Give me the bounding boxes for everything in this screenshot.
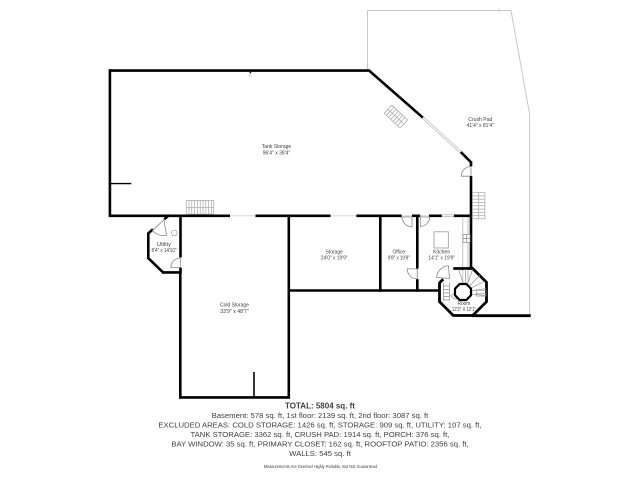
svg-text:Crush Pad: Crush Pad: [468, 117, 492, 123]
svg-text:24'0" x 19'9": 24'0" x 19'9": [321, 256, 348, 262]
svg-text:WALLS: 545 sq. ft: WALLS: 545 sq. ft: [289, 449, 352, 458]
svg-text:BAY WINDOW: 35 sq. ft, PRIMARY: BAY WINDOW: 35 sq. ft, PRIMARY CLOSET: 1…: [171, 440, 468, 449]
svg-text:Office: Office: [393, 249, 406, 255]
svg-text:TOTAL: 5804 sq. ft: TOTAL: 5804 sq. ft: [285, 402, 355, 411]
svg-text:96'4" x 38'4": 96'4" x 38'4": [263, 151, 291, 157]
svg-text:33'9" x 48'7": 33'9" x 48'7": [220, 309, 249, 315]
svg-text:Cold Storage: Cold Storage: [220, 303, 249, 309]
svg-text:Measurements Are Deemed Highly: Measurements Are Deemed Highly Reliable,…: [264, 464, 378, 469]
svg-text:8'4" x 14'10": 8'4" x 14'10": [152, 248, 177, 254]
svg-text:14'1" x 19'9": 14'1" x 19'9": [428, 256, 455, 262]
svg-text:Tank Storage: Tank Storage: [262, 144, 292, 150]
svg-text:Kitchen: Kitchen: [433, 249, 450, 255]
svg-text:Storage: Storage: [326, 249, 344, 255]
svg-text:9'8" x 19'9": 9'8" x 19'9": [388, 256, 410, 262]
svg-text:12'2" X 12'1": 12'2" X 12'1": [452, 307, 476, 313]
svg-text:EXCLUDED AREAS: COLD STORAGE:: EXCLUDED AREAS: COLD STORAGE: 1426 sq. f…: [158, 421, 481, 430]
svg-text:Basement: 578 sq. ft, 1st floo: Basement: 578 sq. ft, 1st floor: 2139 sq…: [212, 411, 430, 420]
svg-text:TANK STORAGE: 3362 sq. ft, CRU: TANK STORAGE: 3362 sq. ft, CRUSH PAD: 19…: [191, 430, 450, 439]
svg-text:41'4" x 81'4": 41'4" x 81'4": [467, 123, 494, 129]
svg-text:Utility: Utility: [157, 242, 171, 248]
